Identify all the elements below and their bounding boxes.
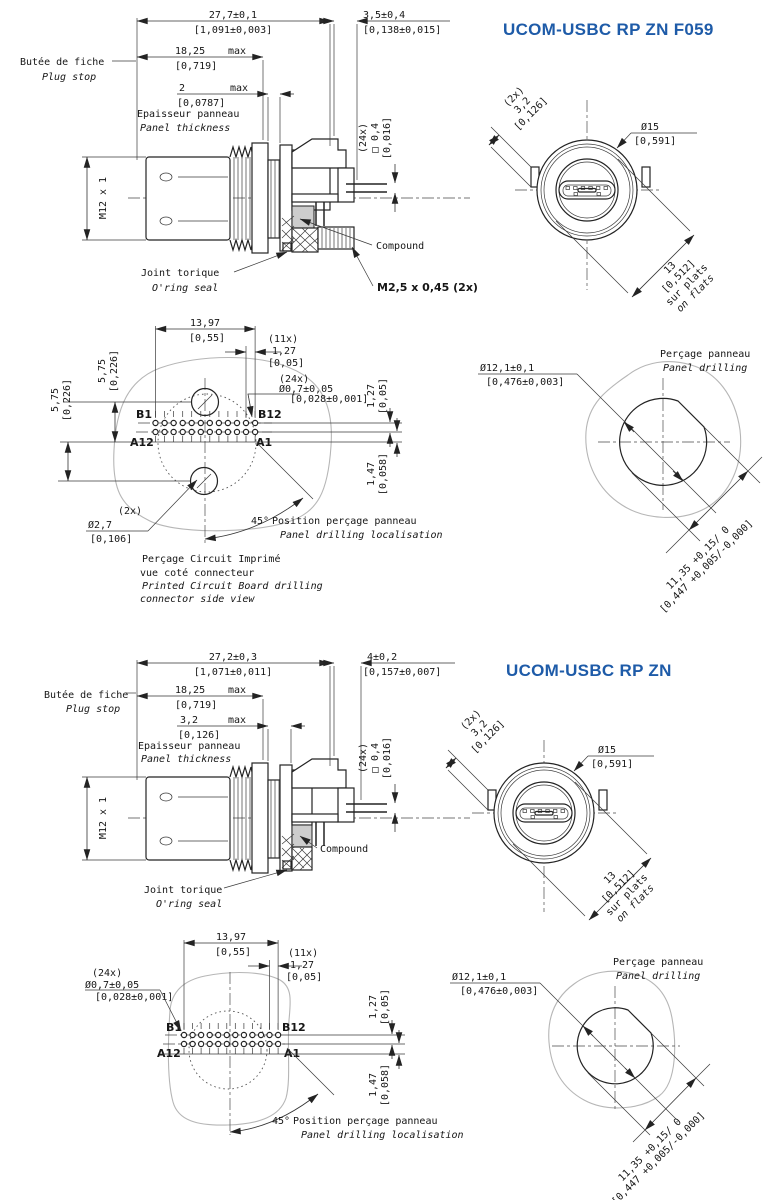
dim-depth-mm: 18,25 bbox=[175, 46, 205, 57]
technical-drawing: 27,7±0,1 [1,091±0,003] 3,5±0,4 [0,138±0,… bbox=[0, 0, 767, 1200]
panel-dia-mm: Ø12,1±0,1 bbox=[480, 362, 534, 374]
front-dia-mm: Ø15 bbox=[598, 744, 616, 756]
pin-square-mm: □ 0,4 bbox=[370, 743, 381, 773]
big-hole-count: (2x) bbox=[118, 506, 142, 517]
dim-offset-mm: 1,47 bbox=[366, 462, 377, 486]
dim-panel-in: [0,126] bbox=[178, 730, 220, 741]
dim-tail-mm: 4±0,2 bbox=[367, 652, 397, 663]
dim-panel-mm: 2 bbox=[179, 83, 185, 94]
pcb-caption-fr1: Perçage Circuit Imprimé bbox=[142, 553, 280, 565]
dim-overall-in: [1,091±0,003] bbox=[194, 25, 272, 36]
dim-row-mm: 1,27 bbox=[366, 384, 377, 408]
pin-square-count: (24x) bbox=[358, 123, 369, 153]
pcb-outline bbox=[168, 973, 290, 1126]
compound-label: Compound bbox=[320, 844, 368, 855]
dim-offset-mm: 1,47 bbox=[368, 1073, 379, 1097]
dim-pitch-mm: 1,27 bbox=[272, 346, 296, 357]
thread-crest-top bbox=[230, 147, 253, 157]
connector-face bbox=[537, 140, 637, 240]
panel-nut bbox=[252, 763, 268, 873]
panel-flat-in: [0,447 +0,005/-0,000] bbox=[610, 1110, 707, 1200]
pin-square-count: (24x) bbox=[358, 743, 369, 773]
angle-en: Panel drilling localisation bbox=[280, 530, 443, 541]
dim-depth-max: max bbox=[228, 685, 246, 696]
dim-pitch-mm: 1,27 bbox=[290, 960, 314, 971]
dim-down-mm: 5,75 bbox=[50, 388, 61, 412]
dim-depth-max: max bbox=[228, 46, 246, 57]
dim-tail-in: [0,138±0,015] bbox=[363, 25, 441, 36]
pin-square-in: [0,016] bbox=[382, 117, 393, 159]
pin-label-b1: B1 bbox=[166, 1021, 182, 1034]
panel-thickness-en: Panel thickness bbox=[141, 754, 231, 765]
oring-en: O'ring seal bbox=[152, 283, 218, 294]
plug-stop-en: Plug stop bbox=[42, 72, 96, 83]
hole-count: (24x) bbox=[92, 968, 122, 979]
front-dia-mm: Ø15 bbox=[641, 121, 659, 133]
oring-en: O'ring seal bbox=[156, 899, 222, 910]
plug-stop-fr: Butée de fiche bbox=[44, 689, 128, 701]
panel-dia-in: [0,476±0,003] bbox=[486, 377, 564, 388]
front-view-f059: Ø15 [0,591] (2x) 3,2 [0,126] 13 [0,512] … bbox=[489, 78, 719, 316]
dim-tail-mm: 3,5±0,4 bbox=[363, 10, 405, 21]
pin-overmold bbox=[292, 759, 346, 788]
connector-face bbox=[494, 763, 594, 863]
hole-in: [0,028±0,001] bbox=[290, 394, 368, 405]
big-hole-in: [0,106] bbox=[90, 534, 132, 545]
section-zn: 27,2±0,3 [1,071±0,011] 4±0,2 [0,157±0,00… bbox=[44, 652, 710, 1200]
front-dia-in: [0,591] bbox=[591, 759, 633, 770]
panel-flat-in: [0,447 +0,005/-0,000] bbox=[658, 518, 755, 615]
pin-label-b1: B1 bbox=[136, 408, 152, 421]
dim-row-mm: 1,27 bbox=[368, 995, 379, 1019]
dim-depth-in: [0,719] bbox=[175, 700, 217, 711]
pcb-view-f059: B1 B12 A12 A1 13,97 [0,55] (11x) 1,27 [0… bbox=[50, 318, 443, 605]
plug-stop-en: Plug stop bbox=[66, 704, 120, 715]
front-view-zn: Ø15 [0,591] (2x) 3,2 [0,126] 13 [0,512] … bbox=[446, 701, 659, 926]
thread-label: M12 x 1 bbox=[98, 177, 109, 219]
panel-nut bbox=[252, 143, 268, 253]
front-dia-in: [0,591] bbox=[634, 136, 676, 147]
side-view-f059: 27,7±0,1 [1,091±0,003] 3,5±0,4 [0,138±0,… bbox=[20, 10, 478, 294]
angle-value: 45° bbox=[272, 1116, 290, 1127]
panel-caption-en: Panel drilling bbox=[616, 971, 700, 982]
compound-label: Compound bbox=[376, 241, 424, 252]
pcb-caption-fr2: vue coté connecteur bbox=[140, 567, 254, 579]
rear-flange bbox=[280, 765, 292, 871]
pin-square-mm: □ 0,4 bbox=[370, 123, 381, 153]
dim-overall-mm: 27,7±0,1 bbox=[209, 10, 257, 21]
pin-label-a1: A1 bbox=[256, 436, 272, 449]
pin-square-in: [0,016] bbox=[382, 737, 393, 779]
plug-stop-fr: Butée de fiche bbox=[20, 56, 104, 68]
panel-dia-in: [0,476±0,003] bbox=[460, 986, 538, 997]
panel-dia-mm: Ø12,1±0,1 bbox=[452, 971, 506, 983]
dim-depth-in: [0,719] bbox=[175, 61, 217, 72]
oring-fr: Joint torique bbox=[141, 268, 219, 279]
dim-pitch-count: (11x) bbox=[268, 334, 298, 345]
panel-outline bbox=[549, 971, 675, 1108]
connector-body bbox=[146, 157, 230, 240]
dim-offset-in: [0,058] bbox=[378, 453, 389, 495]
pin-label-b12: B12 bbox=[258, 408, 282, 421]
pin-label-a12: A12 bbox=[130, 436, 154, 449]
pin-label-b12: B12 bbox=[282, 1021, 306, 1034]
pcb-view-zn: B1 B12 A12 A1 13,97 [0,55] (11x) 1,27 [0… bbox=[85, 932, 464, 1141]
dim-panel-in: [0,0787] bbox=[177, 98, 225, 109]
pin-header bbox=[338, 168, 354, 202]
dim-row-in: [0,05] bbox=[380, 989, 391, 1025]
thread-label: M12 x 1 bbox=[98, 797, 109, 839]
dim-panel-max: max bbox=[228, 715, 246, 726]
angle-fr: Position perçage panneau bbox=[272, 516, 417, 527]
panel-caption-fr: Perçage panneau bbox=[660, 349, 750, 360]
dim-down-in: [0,226] bbox=[62, 379, 73, 421]
pcb-caption-en1: Printed Circuit Board drilling bbox=[142, 581, 323, 592]
screw-label: M2,5 x 0,45 (2x) bbox=[377, 281, 478, 294]
dim-tail-in: [0,157±0,007] bbox=[363, 667, 441, 678]
panel-view-zn: Perçage panneau Panel drilling Ø12,1±0,1… bbox=[450, 957, 710, 1200]
side-view-zn: 27,2±0,3 [1,071±0,011] 4±0,2 [0,157±0,00… bbox=[44, 652, 470, 910]
section-f059: 27,7±0,1 [1,091±0,003] 3,5±0,4 [0,138±0,… bbox=[20, 10, 762, 615]
dim-pitch-in: [0,05] bbox=[268, 358, 304, 369]
dim-panel-max: max bbox=[230, 83, 248, 94]
dim-up-in: [0,226] bbox=[109, 350, 120, 392]
thread-crest-bottom bbox=[230, 240, 253, 250]
rear-flange bbox=[280, 145, 292, 251]
panel-view-f059: Perçage panneau Panel drilling Ø12,1±0,1… bbox=[478, 349, 762, 615]
pin-label-a12: A12 bbox=[157, 1047, 181, 1060]
angle-value: 45° bbox=[251, 516, 269, 527]
dim-width-in: [0,55] bbox=[215, 947, 251, 958]
hole-mm: Ø0,7±0,05 bbox=[85, 979, 139, 991]
dim-pitch-count: (11x) bbox=[288, 948, 318, 959]
panel-caption-fr: Perçage panneau bbox=[613, 957, 703, 968]
panel-thickness-fr: Epaisseur panneau bbox=[138, 741, 240, 752]
screw-boss bbox=[318, 227, 354, 249]
dim-panel-mm: 3,2 bbox=[180, 715, 198, 726]
dim-overall-mm: 27,2±0,3 bbox=[209, 652, 257, 663]
dim-row-in: [0,05] bbox=[378, 378, 389, 414]
dim-overall-in: [1,071±0,011] bbox=[194, 667, 272, 678]
big-hole-mm: Ø2,7 bbox=[88, 519, 112, 531]
pcb-caption-en2: connector side view bbox=[140, 594, 255, 605]
connector-body bbox=[146, 777, 230, 860]
pin-overmold bbox=[292, 139, 346, 168]
dim-pitch-in: [0,05] bbox=[286, 972, 322, 983]
dim-width-in: [0,55] bbox=[189, 333, 225, 344]
angle-fr: Position perçage panneau bbox=[293, 1116, 438, 1127]
compound-fill bbox=[292, 825, 312, 847]
dim-depth-mm: 18,25 bbox=[175, 685, 205, 696]
panel-thickness-fr: Epaisseur panneau bbox=[137, 109, 239, 120]
datasheet-page: UCOM-USBC RP ZN F059 UCOM-USBC RP ZN 27,… bbox=[0, 0, 767, 1200]
angle-en: Panel drilling localisation bbox=[301, 1130, 464, 1141]
compound-fill bbox=[292, 206, 314, 228]
dim-offset-in: [0,058] bbox=[380, 1064, 391, 1106]
dim-width-mm: 13,97 bbox=[190, 318, 220, 329]
panel-caption-en: Panel drilling bbox=[663, 363, 747, 374]
dim-width-mm: 13,97 bbox=[216, 932, 246, 943]
panel-thickness-en: Panel thickness bbox=[140, 123, 230, 134]
dim-up-mm: 5,75 bbox=[97, 359, 108, 383]
oring-fr: Joint torique bbox=[144, 885, 222, 896]
pin-header bbox=[338, 788, 354, 822]
